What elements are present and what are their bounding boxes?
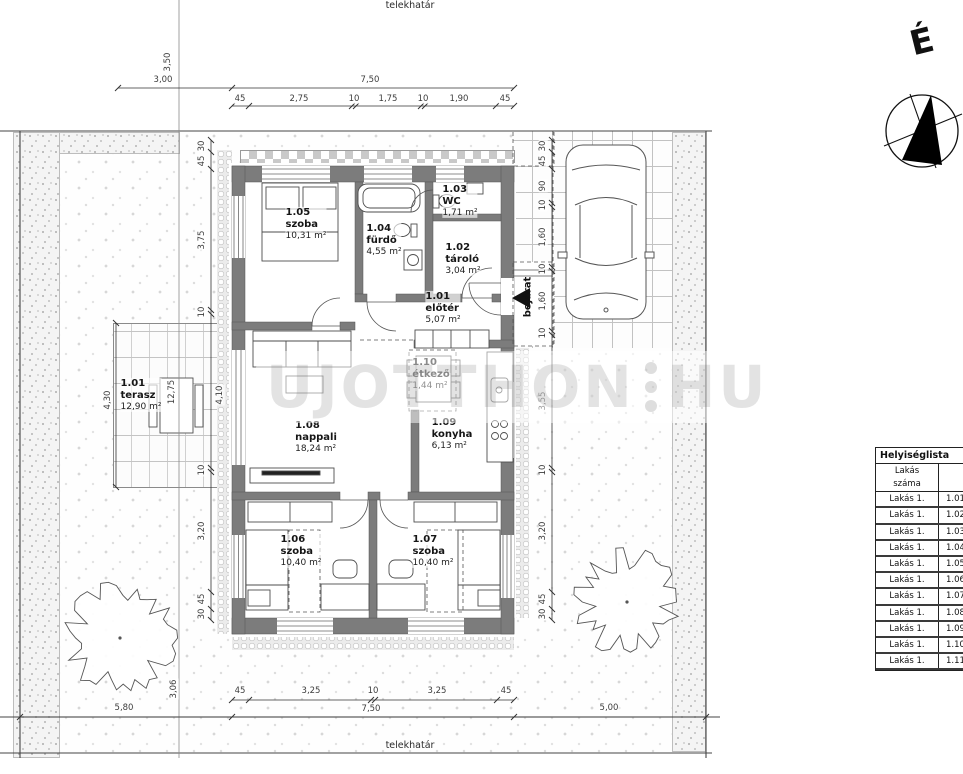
dimension-label: 3,06 bbox=[170, 679, 179, 700]
room-list-row: Lakás 1.1.10 bbox=[876, 638, 963, 654]
dimension-label: 45 bbox=[198, 155, 207, 168]
dimension-label: 45 bbox=[198, 593, 207, 606]
dimension-label: 3,25 bbox=[301, 687, 322, 696]
dimension-label: 3,75 bbox=[198, 230, 207, 251]
room-label: 1.07szoba10,40 m² bbox=[412, 534, 453, 568]
room-list-row: Lakás 1.1.07 bbox=[876, 589, 963, 605]
dimension-label: 30 bbox=[198, 140, 207, 153]
room-list-col-header: Helyiségszáma bbox=[939, 464, 963, 491]
entrance-porch bbox=[513, 262, 554, 346]
room-label: 1.04fürdő4,55 m² bbox=[366, 223, 401, 257]
room-list-body: Lakás 1.1.01Lakás 1.1.02Lakás 1.1.03Laká… bbox=[876, 492, 963, 670]
dimension-label: 12,75 bbox=[168, 379, 177, 405]
dimension-label: 10 bbox=[348, 95, 361, 104]
room-list-row: Lakás 1.1.08 bbox=[876, 606, 963, 622]
dimension-label: 1,60 bbox=[539, 227, 548, 248]
dimension-label: 5,00 bbox=[599, 704, 620, 713]
tree-icon bbox=[574, 548, 678, 653]
dimension-label: 45 bbox=[234, 687, 247, 696]
room-label: 1.01előtér5,07 m² bbox=[425, 291, 460, 325]
dimension-label: 4,10 bbox=[216, 385, 225, 406]
dimension-label: 30 bbox=[539, 140, 548, 153]
dimension-label: 1,75 bbox=[378, 95, 399, 104]
room-list-row: Lakás 1.1.02 bbox=[876, 508, 963, 524]
watermark-dots-icon bbox=[645, 362, 657, 412]
room-label: 1.06szoba10,40 m² bbox=[280, 534, 321, 568]
watermark: UJOTTHON HU bbox=[250, 351, 784, 423]
dimension-label: 30 bbox=[539, 608, 548, 621]
dimension-label: 90 bbox=[539, 180, 548, 193]
room-label: 1.05szoba10,31 m² bbox=[285, 207, 326, 241]
room-list-row: Lakás 1.1.05 bbox=[876, 557, 963, 573]
tree-trunk-dot bbox=[118, 636, 121, 639]
room-list-row: Lakás 1.1.09 bbox=[876, 622, 963, 638]
boundary-label-top: telekhatár bbox=[386, 0, 435, 11]
boundary-label-bottom: telekhatár bbox=[386, 740, 435, 751]
dimension-label: 45 bbox=[499, 95, 512, 104]
dimension-label: 45 bbox=[539, 593, 548, 606]
dimension-label: 1,60 bbox=[539, 291, 548, 312]
room-list-header: LakásszámaHelyiségszáma bbox=[876, 464, 963, 492]
compass-icon bbox=[884, 94, 962, 168]
entrance-label: bejárat bbox=[523, 277, 534, 318]
room-label: 1.01terasz12,90 m² bbox=[120, 378, 161, 412]
dimension-label: 10 bbox=[367, 687, 380, 696]
dimension-label: 10 bbox=[417, 95, 430, 104]
dimension-label: 45 bbox=[234, 95, 247, 104]
dimension-label: 10 bbox=[198, 306, 207, 319]
dimension-label: 45 bbox=[500, 687, 513, 696]
dimension-label: 10 bbox=[539, 263, 548, 276]
room-list-table: Helyiséglista LakásszámaHelyiségszáma La… bbox=[875, 447, 963, 671]
room-list-row: Lakás 1.1.11 bbox=[876, 654, 963, 670]
dimension-label: 2,75 bbox=[289, 95, 310, 104]
dimension-label: 3,20 bbox=[539, 521, 548, 542]
dimension-label: 3,50 bbox=[164, 52, 173, 73]
dimension-label: 7,50 bbox=[360, 76, 381, 85]
dimension-label: 10 bbox=[198, 464, 207, 477]
dimension-label: 10 bbox=[539, 327, 548, 340]
dimension-label: 10 bbox=[539, 199, 548, 212]
room-list-row: Lakás 1.1.04 bbox=[876, 541, 963, 557]
dimension-label: 4,30 bbox=[104, 390, 113, 411]
room-list-row: Lakás 1.1.06 bbox=[876, 573, 963, 589]
room-list-title: Helyiséglista bbox=[876, 448, 963, 464]
room-label: 1.02tároló3,04 m² bbox=[445, 242, 480, 276]
watermark-text-left: UJOTTHON bbox=[266, 353, 635, 421]
dimension-label: 3,00 bbox=[153, 76, 174, 85]
dimension-label: 5,80 bbox=[114, 704, 135, 713]
room-label: 1.08nappali18,24 m² bbox=[295, 420, 337, 454]
room-list-row: Lakás 1.1.03 bbox=[876, 525, 963, 541]
dimension-label: 7,50 bbox=[361, 705, 382, 714]
room-list-row: Lakás 1.1.01 bbox=[876, 492, 963, 508]
dimension-label: 3,20 bbox=[198, 521, 207, 542]
room-list-col-header: Lakásszáma bbox=[876, 464, 939, 491]
car-icon bbox=[558, 145, 654, 319]
room-label: 1.03WC1,71 m² bbox=[442, 184, 477, 218]
dimension-label: 45 bbox=[539, 155, 548, 168]
dimension-label: 1,90 bbox=[449, 95, 470, 104]
watermark-text-right: HU bbox=[667, 353, 769, 421]
dimension-label: 10 bbox=[539, 464, 548, 477]
tree-icon bbox=[65, 582, 178, 690]
site-plan: telekhatár telekhatár bejárat É 3,503,00… bbox=[0, 0, 963, 774]
dimension-label: 3,25 bbox=[427, 687, 448, 696]
tree-trunk-dot bbox=[625, 600, 628, 603]
dimension-label: 30 bbox=[198, 608, 207, 621]
